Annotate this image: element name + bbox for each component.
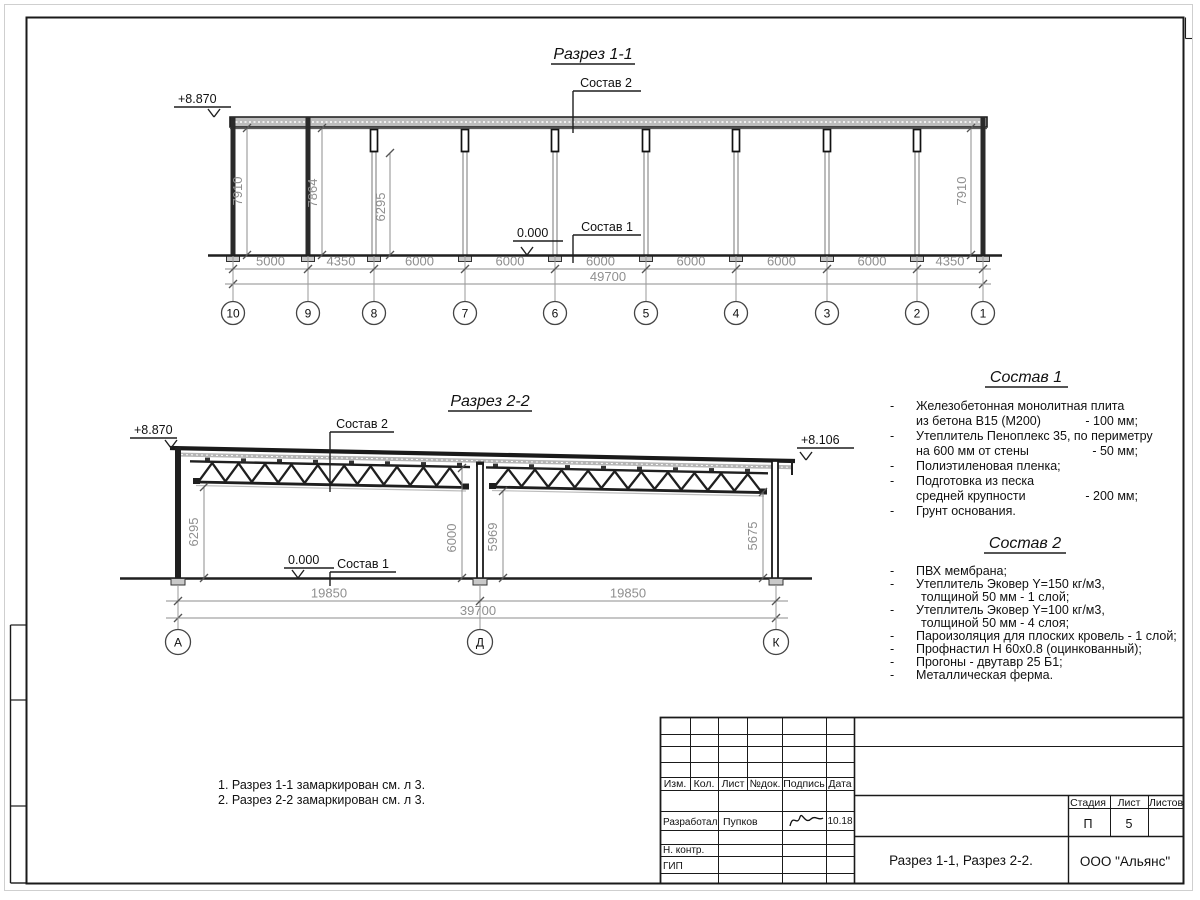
purlin-mark — [709, 468, 714, 471]
axis-label-А: А — [174, 636, 182, 650]
note-line-1: 1. Разрез 1-1 замаркирован см. л 3. — [218, 778, 425, 792]
item-dash: - — [890, 459, 894, 473]
zero-text: 0.000 — [517, 226, 548, 240]
item-dash: - — [890, 577, 894, 591]
tb-sheets-label: Листов — [1149, 797, 1184, 809]
dim-5675: 5675 — [745, 522, 760, 551]
section2-column-axis-d — [477, 464, 483, 579]
item-dash: - — [890, 504, 894, 518]
item-dash: - — [890, 474, 894, 488]
truss-end-plate — [193, 478, 200, 484]
axis-label-8: 8 — [371, 307, 378, 321]
item-dash: - — [890, 668, 894, 682]
axis-label-6: 6 — [552, 307, 559, 321]
axis-label-4: 4 — [733, 307, 740, 321]
sostav1-label-text: Состав 1 — [337, 557, 389, 571]
sostav1-label-text: Состав 1 — [581, 220, 633, 234]
axis-label-9: 9 — [305, 307, 312, 321]
section1-title: Разрез 1-1 — [553, 46, 632, 63]
purlin-mark — [637, 467, 642, 470]
purlin-mark — [673, 467, 678, 470]
axis-label-5: 5 — [643, 307, 650, 321]
section1-column-cap — [824, 130, 831, 152]
purlin-mark — [313, 460, 318, 463]
item-text: средней крупности — [916, 489, 1026, 503]
zero-text: 0.000 — [288, 553, 319, 567]
item-dash: - — [890, 603, 894, 617]
dim-total-39700: 39700 — [460, 603, 496, 618]
purlin-mark — [349, 461, 354, 464]
item-text: толщиной 50 мм - 4 слоя; — [921, 616, 1069, 630]
item-text: ПВХ мембрана; — [916, 564, 1007, 578]
tb-sheet-value: 5 — [1126, 817, 1133, 831]
span-dim-label: 19850 — [311, 586, 347, 601]
dim-6000: 6000 — [444, 524, 459, 553]
tb-stage-value: П — [1084, 817, 1093, 831]
axis-label-1: 1 — [980, 307, 987, 321]
item-text: на 600 мм от стены — [916, 444, 1029, 458]
dim-total-49700: 49700 — [590, 269, 626, 284]
elevation-arrow — [208, 109, 220, 117]
section2-axis-bubbles: АДК — [166, 586, 789, 655]
axis-label-7: 7 — [462, 307, 469, 321]
section2-elevation-right: +8.106 — [797, 433, 854, 460]
span-dim-label: 4350 — [327, 254, 356, 269]
dim-6295: 6295 — [373, 193, 388, 222]
purlin-mark — [493, 464, 498, 467]
tb-gip-label: ГИП — [663, 861, 683, 872]
section1-thin-column — [734, 152, 738, 255]
item-dash: - — [890, 655, 894, 669]
section1-elevation-mark: +8.870 — [174, 92, 231, 117]
item-value: - 50 мм; — [1092, 444, 1138, 458]
tb-developed-date: 10.18 — [827, 816, 852, 827]
section1-middle-columns — [371, 130, 921, 256]
sostav2-items: -ПВХ мембрана;-Утеплитель Эковер Y=150 к… — [890, 564, 1177, 682]
sostav1-items: -Железобетонная монолитная плитаиз бетон… — [890, 399, 1153, 518]
section1-column-cap — [552, 130, 559, 152]
item-text: Прогоны - двутавр 25 Б1; — [916, 655, 1063, 669]
span-dim-label: 6000 — [858, 254, 887, 269]
dim-6295: 6295 — [186, 518, 201, 547]
purlin-mark — [745, 469, 750, 472]
span-dim-label: 5000 — [256, 254, 285, 269]
section1-column-cap — [733, 130, 740, 152]
item-dash: - — [890, 429, 894, 443]
tb-header-izm: Изм. — [664, 778, 687, 790]
item-text: Пароизоляция для плоских кровель - 1 сло… — [916, 629, 1177, 643]
item-value: - 100 мм; — [1085, 414, 1138, 428]
section-1-1: Разрез 1-1 +8.870 Состав 2 0.000 — [174, 46, 1002, 325]
cad-sheet: Разрез 1-1 +8.870 Состав 2 0.000 — [0, 0, 1200, 900]
section1-thin-column — [553, 152, 557, 255]
section1-vertical-dims: 7910 7864 6295 7910 — [230, 124, 975, 259]
purlin-mark — [205, 458, 210, 461]
tb-signature — [790, 815, 823, 826]
tb-header-list: Лист — [722, 778, 745, 790]
dim-7910-right: 7910 — [954, 177, 969, 206]
purlin-mark — [421, 462, 426, 465]
section1-column-cap — [371, 130, 378, 152]
item-text: Подготовка из песка — [916, 474, 1034, 488]
notes: 1. Разрез 1-1 замаркирован см. л 3. 2. Р… — [218, 778, 425, 807]
item-dash: - — [890, 642, 894, 656]
section1-dim-chain: 49700 5000435060006000600060006000600043… — [222, 254, 995, 325]
sostav2-list: Состав 2 -ПВХ мембрана;-Утеплитель Экове… — [890, 535, 1177, 682]
span-dim-label: 19850 — [610, 586, 646, 601]
item-text: Грунт основания. — [916, 504, 1016, 518]
purlin-mark — [457, 463, 462, 466]
sostav1-title: Состав 1 — [990, 369, 1062, 386]
item-text: толщиной 50 мм - 1 слой; — [921, 590, 1069, 604]
section2-dim-chain: 39700 1985019850 АДК — [166, 586, 789, 655]
sostav2-label-text: Состав 2 — [580, 76, 632, 90]
sostav1-list: Состав 1 -Железобетонная монолитная плит… — [890, 369, 1153, 518]
tb-stage-label: Стадия — [1070, 797, 1106, 809]
axis-label-3: 3 — [824, 307, 831, 321]
section1-column-axis1 — [981, 117, 986, 256]
span-dim-label: 6000 — [405, 254, 434, 269]
span-dim-label: 4350 — [936, 254, 965, 269]
span-dim-label: 6000 — [677, 254, 706, 269]
truss-end-plate — [489, 483, 496, 489]
title-block: Изм. Кол. Лист №док. Подпись Дата Разраб… — [661, 718, 1184, 884]
section1-column-cap — [462, 130, 469, 152]
axis-label-10: 10 — [226, 307, 240, 321]
sostav2-title: Состав 2 — [989, 535, 1061, 552]
tb-header-data: Дата — [828, 778, 851, 790]
section1-column-cap — [914, 130, 921, 152]
section2-zero-mark: 0.000 — [284, 553, 334, 578]
section2-title: Разрез 2-2 — [450, 393, 529, 410]
purlin-mark — [241, 458, 246, 461]
section2-footing — [473, 579, 487, 586]
purlin-mark — [385, 461, 390, 464]
item-text: Утеплитель Эковер Y=150 кг/м3, — [916, 577, 1105, 591]
section-2-2: Разрез 2-2 — [120, 393, 854, 655]
axis-label-Д: Д — [476, 636, 484, 650]
section2-footing — [171, 579, 185, 586]
purlin-mark — [565, 465, 570, 468]
item-text: Полиэтиленовая пленка; — [916, 459, 1061, 473]
purlin-mark — [277, 459, 282, 462]
section1-thin-column — [644, 152, 648, 255]
elevation-arrow — [800, 452, 812, 460]
section2-span-dims: 1985019850 — [311, 586, 646, 601]
section1-thin-column — [915, 152, 919, 255]
span-dim-label: 6000 — [496, 254, 525, 269]
axis-label-2: 2 — [914, 307, 921, 321]
zero-arrow — [292, 570, 304, 578]
section2-footing — [769, 579, 783, 586]
item-text: Металлическая ферма. — [916, 668, 1053, 682]
dim-7910-left: 7910 — [230, 177, 245, 206]
item-dash: - — [890, 629, 894, 643]
note-line-2: 2. Разрез 2-2 замаркирован см. л 3. — [218, 793, 425, 807]
tb-header-dok: №док. — [750, 778, 781, 790]
section1-column-cap — [643, 130, 650, 152]
sostav2-label-text: Состав 2 — [336, 417, 388, 431]
purlin-mark — [601, 466, 606, 469]
section2-truss-right — [486, 467, 768, 496]
item-value: - 200 мм; — [1085, 489, 1138, 503]
section1-thin-column — [463, 152, 467, 255]
dim-5969: 5969 — [485, 523, 500, 552]
item-text: Профнастил Н 60х0.8 (оцинкованный); — [916, 642, 1142, 656]
section1-thin-column — [825, 152, 829, 255]
section2-column-axis-k — [772, 461, 778, 579]
item-text: Утеплитель Пеноплекс 35, по периметру — [916, 429, 1153, 443]
item-text: из бетона В15 (М200) — [916, 414, 1041, 428]
tb-doc-title: Разрез 1-1, Разрез 2-2. — [889, 853, 1033, 868]
axis-label-К: К — [773, 636, 780, 650]
truss-end-plate — [462, 484, 469, 490]
span-dim-label: 6000 — [767, 254, 796, 269]
elevation-text: +8.870 — [134, 423, 173, 437]
elevation-text: +8.106 — [801, 433, 840, 447]
tb-developed-label: Разработал — [663, 816, 718, 828]
purlin-mark — [529, 464, 534, 467]
elevation-text: +8.870 — [178, 92, 217, 106]
truss-top-chord — [486, 467, 768, 473]
section2-column-axis-a — [175, 447, 181, 579]
span-dim-label: 6000 — [586, 254, 615, 269]
item-dash: - — [890, 399, 894, 413]
tb-header-podpis: Подпись — [783, 778, 825, 790]
tb-company: ООО "Альянс" — [1080, 854, 1170, 869]
section2-sostav1-label: Состав 1 — [330, 557, 396, 586]
tb-ncontrol-label: Н. контр. — [663, 845, 704, 856]
item-text: Утеплитель Эковер Y=100 кг/м3, — [916, 603, 1105, 617]
tb-sheet-label: Лист — [1118, 797, 1141, 809]
tb-developed-name: Пупков — [723, 816, 758, 828]
drawing-canvas: Разрез 1-1 +8.870 Состав 2 0.000 — [0, 0, 1200, 900]
section2-elevation-left: +8.870 — [130, 423, 177, 448]
item-dash: - — [890, 564, 894, 578]
dim-7864: 7864 — [305, 179, 320, 208]
item-text: Железобетонная монолитная плита — [916, 399, 1124, 413]
tb-header-kol: Кол. — [694, 778, 715, 790]
